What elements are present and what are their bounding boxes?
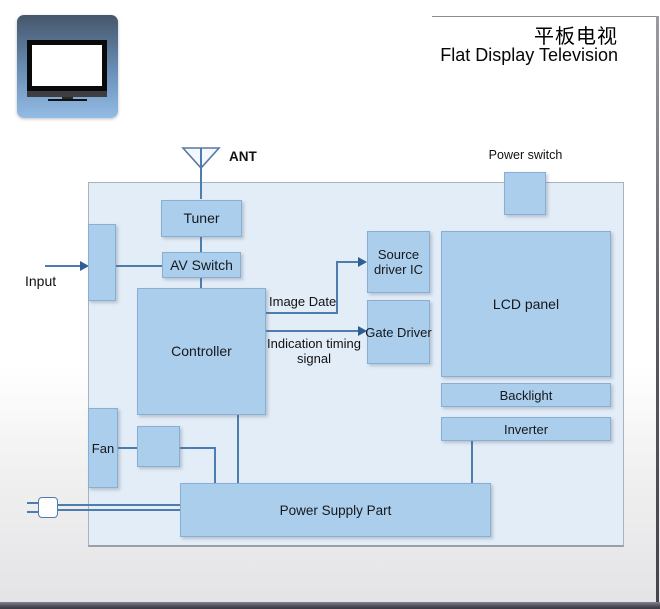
block-gate-driver: Gate Driver — [367, 300, 430, 364]
page-title-en: Flat Display Television — [440, 45, 618, 66]
block-fan-unit — [137, 426, 180, 467]
connector-fansq-h — [180, 447, 216, 449]
block-lcd-panel-label: LCD panel — [493, 297, 559, 312]
block-tuner: Tuner — [161, 200, 242, 237]
connector-fancol-fansq — [118, 447, 137, 449]
arrowhead-source-driver — [358, 257, 367, 267]
block-backlight-label: Backlight — [500, 388, 553, 403]
power-cord-bottom — [58, 509, 180, 511]
block-source-driver-ic: Source driver IC — [367, 231, 430, 293]
tv-screen — [27, 40, 107, 91]
connector-imagedata-v — [336, 261, 338, 314]
block-input-connector — [88, 224, 116, 301]
plug-prong-bottom — [27, 511, 38, 513]
connector-imagedata-h1 — [266, 312, 338, 314]
page: 平板电视 Flat Display Television ANT Power s… — [0, 0, 660, 609]
connector-input — [45, 265, 83, 267]
photo-edge-right — [656, 16, 659, 604]
block-tuner-label: Tuner — [183, 211, 219, 226]
block-source-driver-ic-label: Source driver IC — [368, 247, 429, 277]
connector-avswitch-controller — [200, 278, 202, 288]
connector-antenna-feed — [200, 148, 202, 199]
plug-prong-top — [27, 502, 38, 504]
image-data-label: Image Date — [269, 294, 336, 309]
block-lcd-panel: LCD panel — [441, 231, 611, 377]
power-switch-label: Power switch — [478, 148, 573, 162]
connector-inverter-psu — [471, 441, 473, 483]
block-controller-label: Controller — [171, 344, 232, 359]
photo-edge-top — [432, 16, 656, 17]
block-gate-driver-label: Gate Driver — [365, 325, 431, 340]
block-power-supply: Power Supply Part — [180, 483, 491, 537]
fan-label: Fan — [92, 441, 114, 456]
block-av-switch: AV Switch — [162, 252, 241, 278]
input-label: Input — [25, 273, 56, 289]
tv-stand-base — [48, 99, 87, 101]
photo-edge-bottom — [0, 602, 660, 609]
connector-controller-psu — [237, 415, 239, 483]
connector-tuner-avswitch — [200, 237, 202, 252]
block-controller: Controller — [137, 288, 266, 415]
block-fan: Fan — [88, 408, 118, 488]
connector-timing — [266, 330, 360, 332]
power-cord-top — [58, 504, 180, 506]
block-backlight: Backlight — [441, 383, 611, 407]
tv-icon — [17, 15, 118, 118]
ant-label: ANT — [229, 149, 257, 164]
block-av-switch-label: AV Switch — [170, 258, 233, 273]
power-plug-icon — [38, 497, 58, 518]
block-power-switch — [504, 172, 546, 215]
block-power-supply-label: Power Supply Part — [280, 503, 392, 518]
connector-fansq-psu — [214, 447, 216, 483]
block-inverter-label: Inverter — [504, 422, 548, 437]
block-inverter: Inverter — [441, 417, 611, 441]
connector-imagedata-h2 — [336, 261, 360, 263]
timing-signal-label: Indication timing signal — [266, 336, 362, 366]
connector-inputcol-avswitch — [116, 265, 162, 267]
